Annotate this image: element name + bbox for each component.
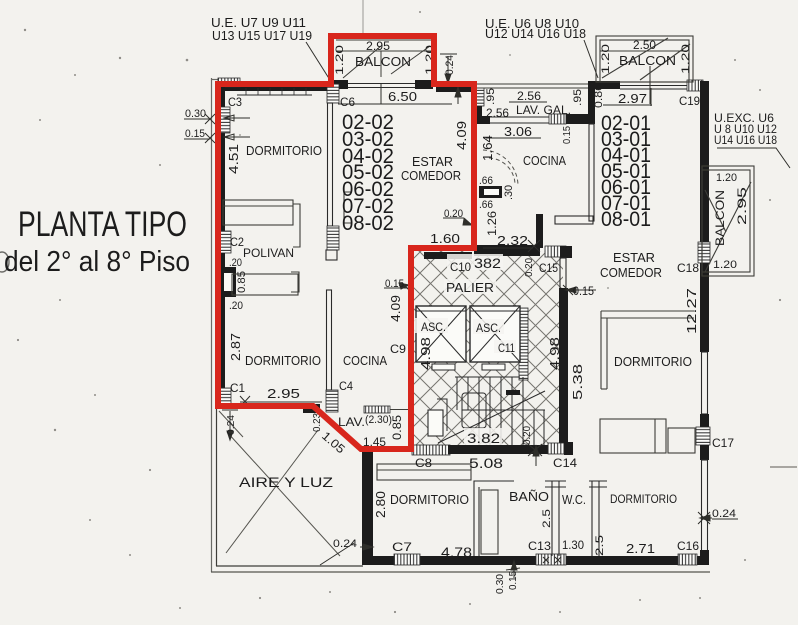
svg-text:DORMITORIO: DORMITORIO [246,144,322,158]
svg-text:0.85: 0.85 [390,415,404,440]
svg-text:3.06: 3.06 [504,124,532,139]
svg-text:4.51: 4.51 [226,144,241,174]
svg-text:C17: C17 [712,436,734,450]
svg-text:1.64: 1.64 [481,135,495,161]
svg-text:COMEDOR: COMEDOR [600,265,662,280]
svg-text:6.50: 6.50 [388,89,417,104]
svg-text:2.95: 2.95 [366,39,390,53]
svg-text:2.95: 2.95 [267,386,300,401]
svg-text:0.24: 0.24 [712,508,736,520]
svg-text:3.82: 3.82 [467,430,500,446]
svg-text:C9: C9 [390,342,406,356]
svg-text:2.95: 2.95 [735,186,749,225]
svg-text:4.98: 4.98 [419,337,433,370]
svg-text:2.32: 2.32 [497,233,528,248]
svg-text:DORMITORIO: DORMITORIO [610,492,677,506]
svg-text:.66: .66 [479,175,493,187]
svg-text:12.27: 12.27 [684,288,699,334]
svg-text:0.86: 0.86 [593,84,605,108]
svg-text:382: 382 [474,255,501,271]
svg-text:PLANTA TIPO: PLANTA TIPO [18,205,187,244]
svg-text:0.30: 0.30 [185,108,206,120]
svg-text:C18: C18 [677,261,699,275]
svg-text:0.24: 0.24 [444,55,456,75]
svg-text:2.80: 2.80 [374,491,388,518]
svg-text:0.24: 0.24 [333,538,357,550]
svg-text:0.85: 0.85 [236,271,248,293]
svg-text:C19: C19 [679,94,700,108]
svg-text:DORMITORIO: DORMITORIO [614,355,692,369]
svg-text:C4: C4 [339,379,353,393]
svg-text:.66: .66 [479,199,493,211]
svg-text:2.5: 2.5 [594,535,606,556]
svg-text:C7: C7 [392,540,412,554]
svg-text:2.56: 2.56 [486,106,509,120]
svg-text:.20: .20 [229,300,243,312]
svg-text:BALCON: BALCON [355,55,411,69]
svg-text:5.38: 5.38 [570,364,585,400]
svg-text:LAV. GAL.: LAV. GAL. [516,103,571,117]
svg-text:(2.30): (2.30) [365,414,392,426]
svg-text:2.50: 2.50 [633,38,656,52]
svg-text:1.30: 1.30 [562,538,584,552]
svg-text:ESTAR: ESTAR [613,250,655,265]
svg-text:del 2° al 8° Piso: del 2° al 8° Piso [4,246,190,278]
svg-text:0.15: 0.15 [561,126,573,144]
svg-text:1.20: 1.20 [680,44,692,74]
svg-text:U12 U14 U16 U18: U12 U14 U16 U18 [485,26,586,41]
svg-text:0.20: 0.20 [523,258,535,277]
svg-text:C1: C1 [230,381,245,395]
svg-text:COMEDOR: COMEDOR [401,168,461,183]
svg-text:C11: C11 [498,341,515,355]
svg-text:1.20: 1.20 [713,259,737,271]
svg-text:DORMITORIO: DORMITORIO [245,354,321,368]
svg-text:C13: C13 [528,539,551,553]
svg-text:ASC.: ASC. [476,321,501,335]
svg-text:C10: C10 [450,260,471,274]
svg-text:.30: .30 [503,185,515,200]
svg-text:DORMITORIO: DORMITORIO [390,493,469,507]
svg-text:AIRE Y LUZ: AIRE Y LUZ [239,475,333,490]
svg-text:COCINA: COCINA [343,354,388,368]
svg-text:1.20: 1.20 [600,44,612,74]
svg-text:5.08: 5.08 [469,455,503,471]
svg-text:4.09: 4.09 [454,121,469,150]
svg-text:0.15: 0.15 [573,284,594,298]
svg-text:0.20: 0.20 [521,426,533,445]
svg-text:0.30: 0.30 [494,574,506,594]
svg-text:1.20: 1.20 [334,45,346,75]
svg-text:C6: C6 [340,95,355,109]
svg-text:4.09: 4.09 [389,295,403,322]
svg-text:BALCON: BALCON [619,54,676,68]
svg-text:2.97: 2.97 [618,91,647,106]
svg-text:BAÑO: BAÑO [509,490,549,504]
svg-text:U13 U15 U17 U19: U13 U15 U17 U19 [212,28,312,43]
svg-text:.20: .20 [229,257,242,269]
svg-text:C14: C14 [553,456,577,470]
svg-text:ASC.: ASC. [421,320,446,334]
svg-text:POLIVAN: POLIVAN [243,246,294,260]
svg-text:2.71: 2.71 [626,541,655,556]
svg-text:.95: .95 [572,89,584,106]
svg-text:0.24: 0.24 [225,415,237,435]
svg-text:C15: C15 [539,261,558,275]
svg-text:0.15: 0.15 [185,128,205,140]
svg-text:PALIER: PALIER [446,280,494,295]
svg-text:U14 U16 U18: U14 U16 U18 [714,133,777,147]
svg-text:08-02: 08-02 [342,212,394,235]
svg-text:C8: C8 [415,456,432,470]
svg-text:.95: .95 [485,88,497,105]
svg-text:COCINA: COCINA [523,154,567,168]
svg-text:4.78: 4.78 [441,545,472,560]
svg-text:2.5: 2.5 [541,509,553,528]
svg-text:1.60: 1.60 [430,231,460,246]
svg-text:C3: C3 [228,95,242,109]
svg-text:2.56: 2.56 [517,89,541,103]
svg-text:0.15: 0.15 [507,571,519,590]
svg-text:08-01: 08-01 [601,208,651,231]
svg-text:4.98: 4.98 [548,337,562,370]
svg-text:0.20: 0.20 [444,208,463,220]
svg-text:ESTAR: ESTAR [412,154,453,169]
svg-text:C16: C16 [677,539,699,553]
svg-text:LAV.: LAV. [338,415,365,429]
svg-text:BALCON: BALCON [713,190,727,246]
svg-text:1.20: 1.20 [716,172,737,184]
svg-text:2.87: 2.87 [229,333,243,361]
svg-text:0.15: 0.15 [385,278,404,290]
svg-text:W.C.: W.C. [562,493,586,507]
